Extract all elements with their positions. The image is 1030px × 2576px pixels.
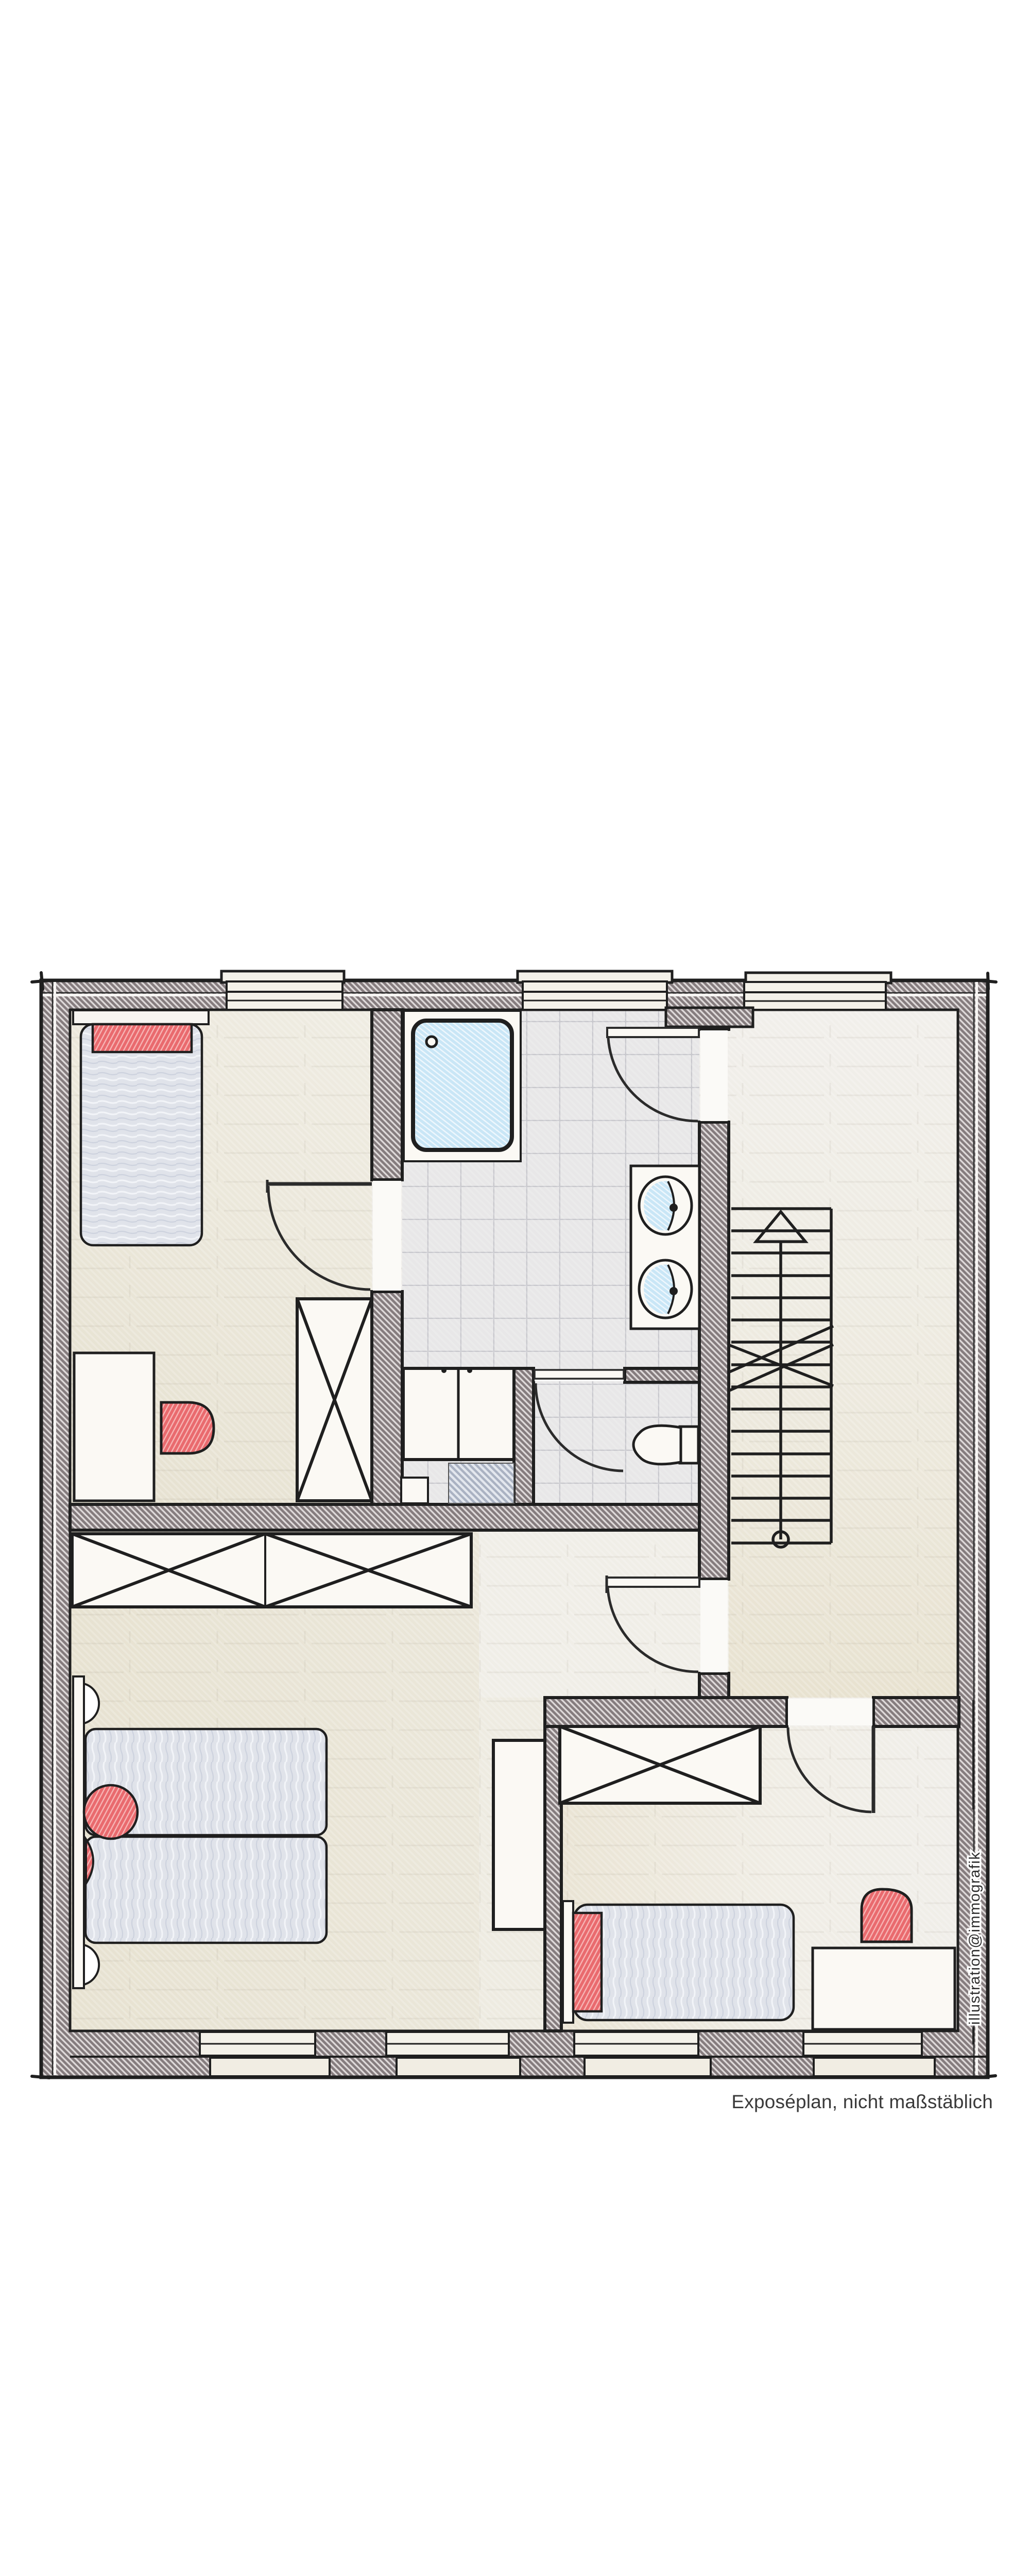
svg-text:Exposéplan, nicht maßstäblich: Exposéplan, nicht maßstäblich: [731, 2091, 993, 2112]
svg-text:illustration@immografik: illustration@immografik: [967, 1852, 983, 2025]
